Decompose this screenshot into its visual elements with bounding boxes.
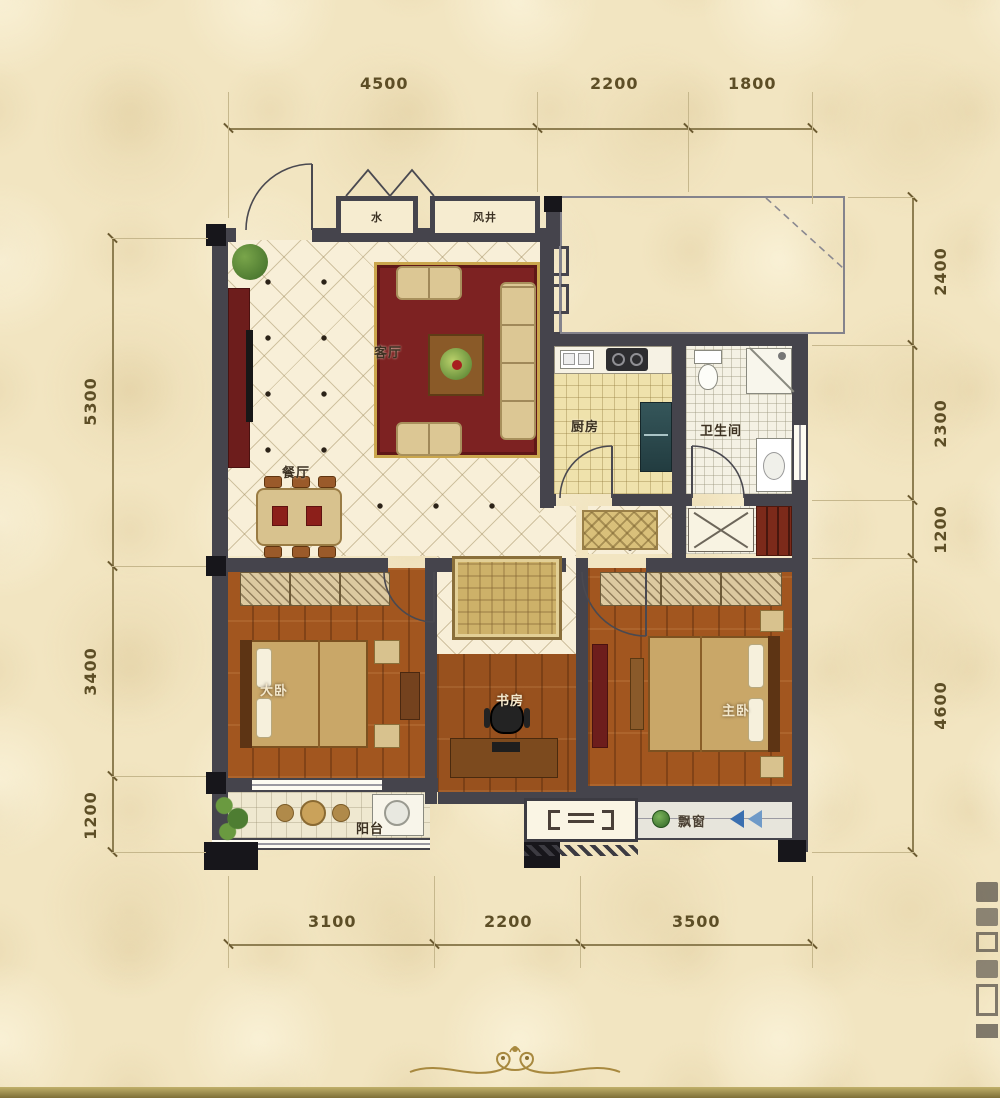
window-symbol-bracket	[548, 810, 560, 830]
air-shaft-label: 风井	[473, 209, 497, 225]
washer-door	[384, 800, 410, 826]
dim-ext	[812, 558, 914, 559]
dim-line-top	[228, 128, 812, 130]
office-chair-arm	[484, 708, 490, 728]
water-shaft-label: 水	[371, 209, 383, 225]
dim-left-2: 3400	[81, 647, 100, 696]
balcony-chair	[276, 804, 294, 822]
duvet-fold	[700, 636, 702, 752]
table-flowers-red	[452, 360, 462, 370]
foot-bench	[630, 658, 644, 730]
dim-ext	[112, 566, 206, 567]
tv-screen	[246, 330, 253, 422]
balcony-chair	[332, 804, 350, 822]
void-outline	[560, 196, 845, 334]
sofa-main	[500, 282, 536, 440]
dim-ext	[848, 197, 914, 198]
dim-ext	[580, 876, 581, 968]
window-symbol-bracket	[602, 810, 614, 830]
dim-ext	[812, 500, 914, 501]
toilet-bowl	[698, 364, 718, 390]
nightstand	[760, 756, 784, 778]
dim-top-1: 4500	[360, 74, 409, 93]
wall-stub	[778, 840, 806, 862]
office-chair-arm	[524, 708, 530, 728]
wall	[672, 332, 686, 558]
bed-headboard	[240, 640, 252, 748]
wardrobe-master	[600, 572, 782, 606]
desk-monitor	[492, 742, 520, 752]
ac-platform-symbol	[549, 284, 569, 314]
bottom-gold-band	[0, 1087, 1000, 1098]
dim-right-4: 4600	[931, 681, 950, 730]
ornament-flourish	[400, 1042, 630, 1088]
duvet-fold	[318, 640, 320, 748]
air-shaft: 风井	[430, 196, 540, 238]
wardrobe-divider	[660, 572, 662, 606]
wardrobe-divider	[339, 572, 341, 606]
dim-ext	[112, 776, 206, 777]
living-room-label: 客厅	[374, 342, 402, 361]
wall	[425, 558, 437, 804]
wardrobe-divider	[289, 572, 291, 606]
dim-line-left	[112, 238, 114, 852]
armchair	[396, 422, 462, 456]
wall	[212, 228, 228, 852]
ac-platform-symbol	[549, 246, 569, 276]
dim-ext	[812, 345, 914, 346]
balcony-table	[300, 800, 326, 826]
nightstand	[374, 724, 400, 748]
nightstand	[760, 610, 784, 632]
plant	[232, 244, 268, 280]
dining-chair	[318, 546, 336, 558]
bay-window-arrows-icon	[730, 810, 744, 828]
dim-ext	[812, 876, 813, 968]
dim-top-3: 1800	[728, 74, 777, 93]
floor-plan-page: { "plan": { "type": "apartment-floor-pla…	[0, 0, 1000, 1098]
water-shaft: 水	[336, 196, 418, 238]
edge-watermark	[972, 882, 1000, 1048]
dim-ext	[434, 876, 435, 968]
dim-ext	[812, 852, 914, 853]
dining-table	[256, 488, 342, 546]
wall	[744, 494, 808, 506]
stove-burner	[630, 353, 643, 366]
kitchen-sink-basin	[563, 353, 575, 365]
balcony-plants	[214, 790, 248, 842]
dim-bottom-1: 3100	[308, 912, 357, 931]
study-label: 书房	[496, 690, 524, 709]
wall-stub	[204, 842, 258, 870]
wall-stub	[544, 196, 562, 212]
dim-right-3: 1200	[931, 505, 950, 554]
wall	[576, 558, 588, 804]
doormat	[582, 510, 658, 550]
wall	[212, 558, 388, 572]
dim-ext	[812, 92, 813, 204]
wardrobe	[240, 572, 390, 606]
vanity-basin	[763, 452, 785, 480]
dim-ext	[228, 92, 229, 218]
dining-chair	[264, 476, 282, 488]
dresser	[400, 672, 420, 720]
wall-stub	[206, 224, 226, 246]
dining-mat	[306, 506, 322, 526]
window-symbol-hatch	[524, 845, 638, 856]
pillow	[748, 698, 764, 742]
pillow	[748, 644, 764, 688]
closet-bifold	[688, 508, 754, 552]
dim-line-bottom	[228, 944, 812, 946]
armchair	[396, 266, 462, 300]
dim-line-right	[912, 197, 914, 852]
wall	[540, 494, 556, 506]
dim-left-3: 1200	[81, 791, 100, 840]
storage-cabinet	[756, 506, 792, 556]
dim-ext	[688, 92, 689, 192]
dim-top-2: 2200	[590, 74, 639, 93]
dim-left-1: 5300	[81, 377, 100, 426]
bed-headboard-master	[768, 636, 780, 752]
bay-window-arrows-icon	[748, 810, 762, 828]
kitchen-sink-basin	[578, 353, 590, 365]
pillow	[256, 698, 272, 738]
fridge	[640, 402, 672, 472]
kitchen-label: 厨房	[571, 416, 599, 435]
bay-window-badge	[652, 810, 670, 828]
window-symbol-zigzag	[568, 813, 594, 827]
dim-right-2: 2300	[931, 399, 950, 448]
hall-passage-floor	[540, 506, 576, 556]
dim-bottom-3: 3500	[672, 912, 721, 931]
nightstand	[374, 640, 400, 664]
wall-stub	[206, 556, 226, 576]
shower-head	[778, 352, 786, 360]
dining-room-label: 餐厅	[282, 462, 310, 481]
fridge-handle	[644, 434, 668, 436]
wall	[792, 332, 808, 852]
dim-ext	[112, 852, 206, 853]
dim-ext	[537, 92, 538, 192]
window-mullion	[799, 425, 801, 480]
hallway-rug	[452, 556, 562, 640]
dining-chair	[318, 476, 336, 488]
dim-bottom-2: 2200	[484, 912, 533, 931]
wall	[646, 558, 808, 572]
master-bedroom-label: 主卧	[722, 700, 750, 719]
wall	[612, 494, 692, 506]
toilet	[694, 350, 722, 364]
bay-window-label: 飘窗	[678, 811, 706, 830]
bathroom-label: 卫生间	[700, 420, 742, 439]
dim-ext	[112, 238, 208, 239]
wardrobe-divider	[720, 572, 722, 606]
window-mullion	[252, 784, 382, 786]
tv-cabinet-master	[592, 644, 608, 748]
bedroom-left-label: 大卧	[260, 680, 288, 699]
dim-ext	[228, 876, 229, 968]
dining-chair	[292, 546, 310, 558]
stove-burner	[612, 353, 625, 366]
dim-right-1: 2400	[931, 247, 950, 296]
dining-chair	[264, 546, 282, 558]
dining-mat	[272, 506, 288, 526]
balcony-label: 阳台	[356, 818, 384, 837]
